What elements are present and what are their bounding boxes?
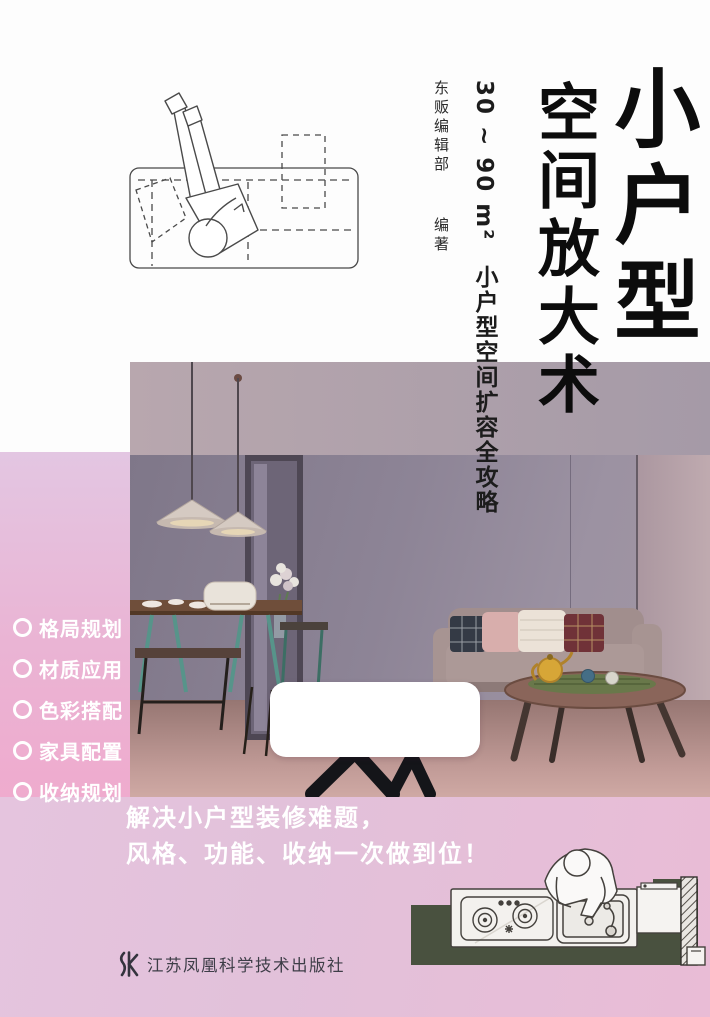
bread-box [204,582,256,610]
publisher-row: 江苏凤凰科学技术出版社 [118,951,345,977]
cup [582,670,595,683]
feature-list: 格局规划 材质应用 色彩搭配 家具配置 收纳规划 [13,614,123,819]
white-pillow [518,610,566,652]
tagline-line-1: 解决小户型装修难题， [126,800,490,836]
circle-bullet-icon [13,782,32,801]
feature-item: 收纳规划 [13,778,123,805]
title-second-column: 空间放大术 [532,80,594,420]
subtitle-column: 30 ~ 90 m² 小户型空间扩容全攻略 [471,80,496,515]
book-cover: 格局规划 材质应用 色彩搭配 家具配置 收纳规划 解决小户型装修难题， 风格、功… [0,0,710,1017]
sofa-topview-illustration [88,90,370,280]
phoenix-logo-icon [118,951,139,977]
circle-bullet-icon [13,618,32,637]
title-first-column: 小户型 [606,64,692,352]
author-name: 东贩编辑部 [432,80,450,175]
author-role: 编著 [431,217,452,255]
subtitle-range: 30 ~ 90 m² [471,80,497,241]
teapot [538,658,562,682]
circle-bullet-icon [13,700,32,719]
feature-label: 家具配置 [39,736,123,765]
feature-item: 材质应用 [13,655,123,682]
circle-bullet-icon [13,659,32,678]
plaid-pillow [450,616,486,652]
cup [606,672,619,685]
blank-white-panel [270,682,480,757]
feature-label: 格局规划 [39,613,123,642]
stool-legs [312,752,430,794]
author-column: 东贩编辑部 编著 [431,80,452,255]
feature-label: 收纳规划 [39,777,123,806]
tagline: 解决小户型装修难题， 风格、功能、收纳一次做到位！ [126,800,490,872]
subtitle-text: 小户型空间扩容全攻略 [471,265,496,515]
tagline-line-2: 风格、功能、收纳一次做到位！ [126,836,490,872]
feature-item: 格局规划 [13,614,123,641]
feature-item: 色彩搭配 [13,696,123,723]
red-pillow [564,614,604,652]
pink-pillow [482,612,522,652]
feature-label: 色彩搭配 [39,695,123,724]
publisher-name: 江苏凤凰科学技术出版社 [147,952,345,976]
circle-bullet-icon [13,741,32,760]
appliance [637,887,681,933]
feature-item: 家具配置 [13,737,123,764]
feature-label: 材质应用 [39,654,123,683]
